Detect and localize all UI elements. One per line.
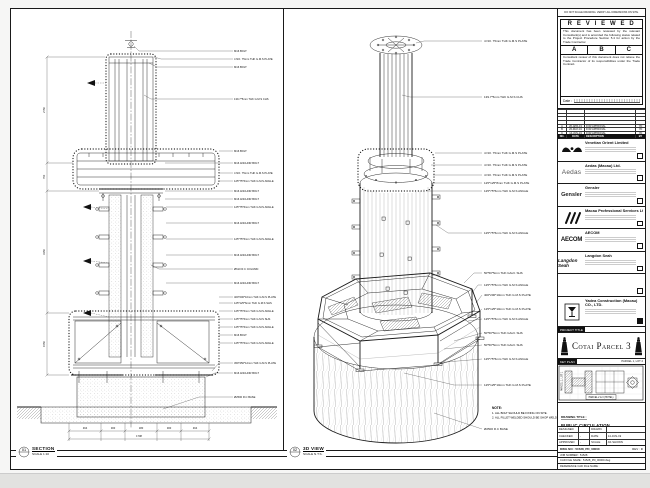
company-name: AECOM — [585, 231, 643, 235]
company-checkbox — [637, 243, 643, 249]
dim-text: 300 — [111, 426, 116, 430]
leader-label: 125*75*6mm THK G.M.S SHS — [234, 317, 270, 321]
leader-label: 450*450*12mm THK G.M.S PLATE — [234, 361, 276, 365]
leader-label: 125*75*6mm THK G.M.S ANGLE — [234, 309, 274, 313]
left-dimensions: 2750 750 3150 1550 — [42, 56, 105, 377]
company-address-lines — [585, 169, 636, 175]
signoff-label: DRAWN — [590, 427, 607, 432]
cad-file-value: 51528_PD_00000.dwg — [583, 459, 610, 462]
leader-label: M16 BOLT — [234, 333, 247, 337]
dim-text: 750 — [42, 174, 46, 179]
company-name: Aedas (Macau) Ltd. — [585, 164, 643, 168]
rev-value: C — [641, 447, 643, 451]
leader-label: 125*125*6mm THK G.M.S SHS — [234, 301, 272, 305]
leader-label: M16 ANCHOR BOLT — [234, 189, 259, 193]
key-plan-parcel-right: PARCEL 1, LOT 2 — [621, 360, 645, 363]
revision-table: A 26-APR-19 FOR APPROVAL YD B 20-MAY-19 … — [558, 109, 645, 139]
company-checkbox — [637, 175, 643, 181]
crown-capital — [73, 149, 219, 189]
view-number-bubble: 02 — [289, 446, 301, 458]
job-number-label: JOB NUMBER : — [560, 454, 579, 457]
key-plan-parcel-left: PARCEL 1, LOT 1 — [561, 371, 564, 391]
project-title-text: Cotai Parcel 3 — [572, 341, 631, 351]
company-checkbox — [637, 266, 643, 272]
note-line: 1. ALL BOLT SHOULD BE FIXING ON SITE. — [492, 411, 548, 415]
project-title-banner: Cotai Parcel 3 — [558, 333, 645, 359]
company-checkbox — [637, 198, 643, 204]
reviewed-body-1: This document has been reviewed by the r… — [561, 29, 642, 45]
key-plan: PARCEL 1, LOT 1 PARCEL 2 & 3 (HOTEL) — [558, 365, 645, 403]
dim-text: 464 — [193, 426, 198, 430]
drawing-sheet: 464 300 180 300 464 1708 2750 750 3150 1… — [10, 8, 646, 470]
aedas-logo: Aedas — [558, 162, 585, 184]
company-row-aedas: Aedas Aedas (Macau) Ltd. — [558, 162, 645, 185]
leader-label: 400*200*10mm THK G.M.S PLATE — [484, 293, 531, 297]
signoff-grid: DESIGNED DRAWN CHECKED - DATE 14-JUN-19 … — [558, 427, 645, 446]
signoff-label: DATE — [590, 433, 607, 438]
signoff-label: APPROVED — [558, 440, 579, 445]
company-row-venetian: Venetian Orient Limited — [558, 139, 645, 162]
leader-label: 4 NO. 75mm THK G.M.S PLATE — [484, 163, 527, 167]
leader-label: 125*75*6mm THK G.M.S ANGLE — [234, 237, 274, 241]
weld-flags — [83, 80, 109, 317]
access-frame — [314, 273, 484, 372]
aecom-logo: AECOM — [558, 229, 585, 251]
status-option-c: C — [616, 46, 642, 54]
dwg-no-label: DWG NO : — [560, 447, 575, 451]
leader-label: M16 BOLT — [234, 149, 247, 153]
company-address-lines — [585, 147, 636, 153]
section-view-title: 01 SECTION SCALE 1:10 — [16, 446, 57, 458]
key-plan-drawing: PARCEL 1, LOT 1 PARCEL 2 & 3 (HOTEL) — [558, 365, 644, 401]
company-name: Macau Professional Services Ltd. — [585, 209, 643, 213]
leader-label: 125*75*6mm THK G.M.S ANGLE — [234, 179, 274, 183]
title-block: DO NOT SCALE DRAWING. VERIFY ALL DIMENSI… — [557, 9, 645, 469]
leader-label: 139.7*5mm THK G.M.S CHS — [484, 95, 523, 99]
tower-ornament-left — [560, 336, 569, 356]
dwg-no-row: DWG NO : 51528_PD_00000 REV : C — [558, 446, 645, 453]
leader-label: 4 NO. 75mm THK G.M.S PLATE — [234, 171, 273, 175]
leader-label: Ø2500 R.C BASE — [234, 395, 256, 399]
note-block: NOTE: 1. ALL BOLT SHOULD BE FIXING ON SI… — [492, 406, 558, 420]
signoff-value — [579, 427, 590, 432]
title-strip-line — [11, 450, 558, 451]
leader-label: M16 ANCHOR BOLT — [234, 221, 259, 225]
signoff-label: CHECKED — [558, 433, 579, 438]
rev-header-date: DATE — [567, 135, 585, 138]
ref-cad-file-row: REFERENCE CAD FILE NAME : — [558, 464, 645, 469]
leader-label: M16 ANCHOR BOLT — [234, 371, 259, 375]
ref-cad-file-label: REFERENCE CAD FILE NAME : — [560, 465, 599, 468]
company-row-empty — [558, 274, 645, 296]
company-row-mps: Macau Professional Services Ltd. — [558, 207, 645, 230]
leader-label: M16 BOLT — [234, 49, 247, 53]
key-plan-label: KEY PLAN — [558, 359, 577, 364]
leader-labels: M16 BOLT 4 NO. 75mm THK G.M.S PLATE M16 … — [134, 46, 276, 409]
company-row-langdon-seah: Langdon Seah Langdon Seah — [558, 252, 645, 275]
company-row-aecom: AECOM AECOM — [558, 229, 645, 252]
leader-label: 125*75*6mm THK G.M.S ANGLE — [234, 341, 274, 345]
reviewed-date-row: Date : — [561, 96, 642, 104]
drawing-title-label: DRAWING TITLE : — [561, 415, 587, 420]
leader-label: 50*50*5mm THK GALV. SHS — [484, 271, 523, 275]
status-option-b: B — [588, 46, 615, 54]
leader-label: 4 NO. 75mm THK G.M.S PLATE — [234, 57, 273, 61]
leader-label: 125*75*6mm THK G.M.S ANGLE — [484, 317, 528, 321]
bottom-margin-band — [0, 473, 650, 488]
leader-label: M16 BOLT — [234, 65, 247, 69]
view-number-bubble: 01 — [18, 446, 30, 458]
dwg-no-value: 51528_PD_00000 — [575, 447, 599, 451]
mps-logo — [558, 207, 585, 229]
company-address-lines — [585, 215, 636, 221]
dim-total-text: 1708 — [136, 434, 142, 438]
review-status-options: A B C — [561, 45, 642, 55]
contractor-address-lines — [585, 309, 636, 315]
dim-text: 300 — [167, 426, 172, 430]
note-title: NOTE: — [492, 406, 502, 410]
company-checkbox — [637, 153, 643, 159]
leader-label: 50*50*5mm THK GALV. SHS — [484, 331, 523, 335]
company-name: Langdon Seah — [585, 254, 643, 258]
drawing-sheet-viewport: 464 300 180 300 464 1708 2750 750 3150 1… — [0, 0, 650, 488]
bottom-dimensions: 464 300 180 300 464 1708 — [68, 423, 211, 441]
key-plan-star — [627, 377, 639, 389]
signoff-value: - — [579, 433, 590, 438]
leader-label: Ø2500 R.C BASE — [484, 427, 508, 431]
gensler-logo: Gensler — [558, 184, 585, 206]
view-scale-text: SCALE N.T.S. — [303, 452, 324, 456]
contractor-logo — [558, 297, 585, 326]
leader-label: 50*50*5mm THK GALV. SHS — [484, 343, 523, 347]
key-plan-building — [565, 371, 624, 393]
company-name: Venetian Orient Limited — [585, 141, 643, 145]
dim-text: 1550 — [42, 341, 46, 347]
signoff-value: - — [579, 440, 590, 445]
panel-divider — [283, 9, 284, 450]
view-scale-text: SCALE 1:10 — [32, 452, 55, 456]
leader-label: 125*75*6mm THK G.M.S ANGLE — [234, 205, 274, 209]
reviewed-body-2: Consultant review of this document does … — [561, 55, 642, 68]
contractor-checkbox — [637, 318, 643, 324]
contractor-name: Yadea Construction (Macau) CO., LTD. — [585, 299, 643, 308]
company-address-lines — [585, 260, 636, 266]
leader-label: 400*200*10mm THK G.M.S PLATE — [234, 295, 276, 299]
leader-label: M16 ANCHOR BOLT — [234, 253, 259, 257]
leader-label: 125*125*10mm THK G.M.S PLATE — [484, 307, 531, 311]
leader-label: 125*75*6mm THK G.M.S ANGLE — [484, 189, 528, 193]
contractor-row: Yadea Construction (Macau) CO., LTD. — [558, 297, 645, 327]
company-address-lines — [585, 237, 636, 243]
dim-text: 464 — [83, 426, 88, 430]
rev-header-desc: DESCRIPTION — [585, 135, 636, 138]
company-checkbox — [637, 288, 643, 294]
leader-label: M16 ANCHOR BOLT — [234, 161, 259, 165]
leader-label: 125*125*10mm THK G.M.S PLATE — [484, 383, 531, 387]
rev-label: REV : — [632, 447, 640, 451]
chs-column-bundle — [380, 53, 412, 157]
leader-label: M16 ANCHOR BOLT — [234, 197, 259, 201]
leader-label: 125*75*6mm THK G.M.S ANGLE — [484, 231, 528, 235]
dim-text: 180 — [139, 426, 144, 430]
cad-file-label: CAD FILE NAME : — [560, 459, 582, 462]
signoff-label: SCALE — [590, 440, 607, 445]
leader-label: 125*75*6mm THK G.M.S ANGLE — [484, 357, 528, 361]
drawing-title-block: DRAWING TITLE : PUBLIC CIRCULATION FOUNT… — [558, 403, 645, 427]
company-row-gensler: Gensler Gensler — [558, 184, 645, 207]
status-option-a: A — [561, 46, 588, 54]
langdon-seah-logo: Langdon Seah — [558, 252, 585, 274]
signoff-label: DESIGNED — [558, 427, 579, 432]
key-plan-parcel-bottom: PARCEL 2 & 3 (HOTEL) — [589, 396, 614, 399]
top-flange — [370, 36, 422, 54]
leader-label: 139.7*5mm THK G.M.S CHS — [234, 97, 269, 101]
venetian-logo — [558, 139, 585, 161]
title-strip-line — [11, 456, 558, 457]
no-scale-note: DO NOT SCALE DRAWING. VERIFY ALL DIMENSI… — [558, 9, 645, 17]
view-number: 01 — [22, 448, 26, 452]
job-number-value: 51528 — [580, 454, 587, 457]
company-name: Gensler — [585, 186, 643, 190]
date-label: Date : — [563, 99, 572, 103]
consultant-list: Venetian Orient Limited Aedas Aedas (Mac… — [558, 139, 645, 297]
signoff-value: 14-JUN-19 — [607, 433, 645, 438]
leader-label: 4 NO. 75mm THK G.M.S PLATE — [484, 173, 527, 177]
company-checkbox — [637, 221, 643, 227]
leader-label: M16 ANCHOR BOLT — [234, 281, 259, 285]
company-address-lines — [585, 192, 636, 198]
signoff-row: APPROVED - SCALE AS SHOWN — [558, 440, 645, 445]
rev-header-no: NO. — [558, 135, 567, 138]
reviewed-stamp-box: R E V I E W E D This document has been r… — [560, 19, 643, 105]
signoff-value — [607, 427, 645, 432]
leader-label: 125*75*6mm THK G.M.S ANGLE — [234, 325, 274, 329]
reviewed-title: R E V I E W E D — [561, 20, 642, 29]
revision-header-row: NO. DATE DESCRIPTION BY — [558, 134, 645, 138]
leader-label: 4 NO. 75mm THK G.M.S PLATE — [484, 151, 527, 155]
section-view-drawing: 464 300 180 300 464 1708 2750 750 3150 1… — [13, 11, 281, 445]
dim-text: 3150 — [42, 249, 46, 255]
tower-ornament-right — [634, 336, 643, 356]
leader-label: Ø610 R.C COLUMN — [234, 267, 258, 271]
note-line: 2. ALL FILLET WELDED SHOULD BE SHOP WELD… — [492, 416, 558, 420]
dim-text: 2750 — [42, 107, 46, 113]
reviewed-stamp: R E V I E W E D This document has been r… — [558, 17, 645, 109]
iso-view-drawing: 4 NO. 75mm THK G.M.S PLATE 139.7*5mm THK… — [284, 11, 558, 445]
leader-label: 4 NO. 75mm THK G.M.S PLATE — [484, 39, 527, 43]
date-line — [574, 99, 640, 103]
leader-label: 125*75*6mm THK G.M.S ANGLE — [484, 283, 528, 287]
view-number: 02 — [293, 448, 297, 452]
rev-header-by: BY — [636, 135, 645, 138]
iso-view-title: 02 3D VIEW SCALE N.T.S. — [287, 446, 326, 458]
project-title-label: PROJECT TITLE — [558, 327, 585, 332]
leader-label: 125*125*8mm THK G.M.S PLATE — [484, 181, 529, 185]
signoff-value: AS SHOWN — [607, 440, 645, 445]
footing — [17, 377, 277, 423]
